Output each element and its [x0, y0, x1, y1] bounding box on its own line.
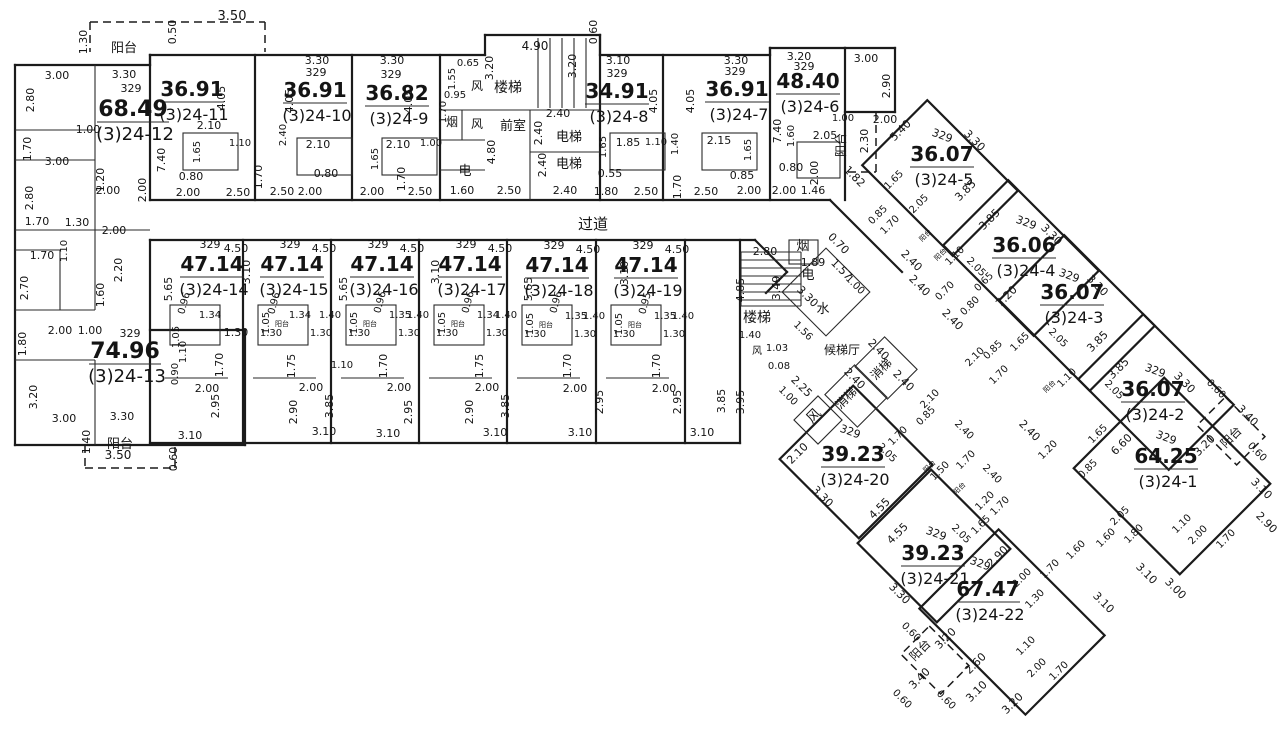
dimension-label: 1.30	[65, 216, 90, 229]
dimension-label: 2.50	[497, 184, 522, 197]
dimension-label: 0.80	[958, 294, 982, 318]
unit-id-label: (3)24-8	[590, 107, 649, 126]
unit-area-label: 36.91	[160, 77, 223, 101]
unit-area-label: 36.07	[1040, 280, 1103, 304]
dimension-label: 2.40	[906, 272, 933, 299]
dimension-label: 2.95	[209, 394, 222, 419]
unit-area-label: 68.49	[98, 97, 168, 122]
dimension-label: 329	[633, 239, 654, 252]
dimension-label: 1.65	[882, 168, 906, 192]
dimension-label: 1.80	[16, 332, 29, 357]
dimension-label: 0.80	[179, 170, 204, 183]
dimension-label: 1.30	[398, 328, 420, 339]
room-label: 过道	[578, 215, 608, 233]
unit-id-label: (3)24-22	[955, 605, 1024, 624]
dimension-label: 3.49	[770, 276, 783, 301]
dimension-label: 1.85	[616, 136, 641, 149]
dimension-label: 2.50	[694, 185, 719, 198]
dimension-label: 0.60	[167, 447, 180, 472]
room-label: 阳台	[539, 320, 553, 329]
dimension-label: 2.10	[784, 440, 811, 467]
dimension-label: 1.40	[739, 330, 761, 341]
room-label: 电梯	[556, 157, 582, 172]
dimension-label: 2.10	[306, 138, 331, 151]
dimension-label: 1.70	[252, 165, 265, 190]
dimension-label: 7.20	[993, 283, 1020, 310]
unit-area-label: 36.82	[365, 81, 428, 105]
dimension-label: 329	[200, 238, 221, 251]
room-label: 风	[471, 79, 483, 93]
dimension-label: 1.30	[436, 328, 458, 339]
unit-id-label: (3)24-7	[710, 105, 769, 124]
dimension-label: 329	[121, 82, 142, 95]
dimension-label: 5.65	[337, 277, 350, 302]
dimension-label: 3.85	[499, 394, 512, 419]
dimension-label: 2.40	[890, 367, 917, 394]
dimension-label: 1.30	[348, 328, 370, 339]
room-label: 阳台	[1041, 378, 1057, 394]
dimension-label: 2.05	[1046, 326, 1070, 350]
dimension-label: 2.95	[671, 390, 684, 415]
dimension-label: 2.40	[952, 418, 976, 442]
dimension-label: 1.30	[613, 329, 635, 340]
dimension-label: 0.60	[890, 687, 914, 711]
dimension-label: 1.40	[670, 133, 681, 155]
dimension-label: 3.00	[45, 155, 70, 168]
dimension-label: 3.10	[606, 54, 631, 67]
unit-area-label: 34.91	[585, 79, 648, 103]
dimension-label: 1.30	[260, 328, 282, 339]
unit-area-label: 64.25	[1134, 444, 1197, 468]
dimension-label: 329	[381, 68, 402, 81]
dimension-label: 1.55	[447, 68, 458, 90]
dimension-label: 1.80	[594, 185, 619, 198]
unit-area-label: 47.14	[525, 253, 588, 277]
unit-id-label: (3)24-12	[96, 124, 174, 145]
unit-id-label: (3)24-16	[349, 280, 418, 299]
room-label: 电梯	[556, 130, 582, 145]
room-label: 阳台	[951, 480, 967, 496]
dimension-label: 1.80	[1122, 522, 1146, 546]
dimension-label: 1.40	[583, 311, 605, 322]
dimension-label: 2.00	[298, 185, 323, 198]
dimension-label: 0.90	[170, 363, 181, 385]
unit-area-label: 39.23	[901, 541, 964, 565]
dimension-label: 2.00	[48, 324, 73, 337]
room-label: 候梯厅	[824, 343, 860, 357]
dimension-label: 0.80	[779, 161, 804, 174]
dimension-label: 1.70	[561, 354, 574, 379]
dimension-label: 2.00	[299, 381, 324, 394]
dimension-label: 2.00	[387, 381, 412, 394]
dimension-label: 0.60	[934, 688, 958, 712]
dimension-label: 2.00	[195, 382, 220, 395]
dimension-label: 0.70	[825, 230, 852, 257]
unit-id-label: (3)24-15	[259, 280, 328, 299]
dimension-label: 2.80	[23, 186, 36, 211]
dimension-label: 1.70	[886, 424, 910, 448]
dimension-label: 3.85	[323, 394, 336, 419]
dimension-label: 1.70	[395, 167, 408, 192]
dimension-label: 329	[280, 238, 301, 251]
dimension-label: 1.60	[450, 184, 475, 197]
unit-id-label: (3)24-3	[1045, 308, 1104, 327]
dimension-label: 1.40	[495, 310, 517, 321]
dimension-label: 1.75	[285, 354, 298, 379]
room-label: 楼梯	[494, 80, 522, 96]
unit-id-label: (3)24-2	[1126, 405, 1185, 424]
dimension-label: 2.00	[772, 184, 797, 197]
floor-plan-drawing: 3.501.300.50阳台3.002.803.303291.001.703.0…	[0, 0, 1287, 741]
unit-area-label: 36.06	[992, 233, 1055, 257]
dimension-label: 0.60	[587, 20, 600, 45]
dimension-label: 3.00	[854, 52, 879, 65]
room-label: 阳台	[628, 320, 642, 329]
dimension-label: 329	[1014, 213, 1038, 232]
dimension-label: 1.10	[1055, 366, 1079, 390]
room-label: 电	[801, 268, 814, 283]
dimension-label: 1.30	[224, 326, 249, 339]
unit-id-label: (3)24-18	[524, 281, 593, 300]
dimension-label: 2.05	[907, 192, 931, 216]
dimension-label: 0.60	[1204, 377, 1228, 401]
unit-id-label: (3)24-19	[613, 281, 682, 300]
dimension-label: 2.95	[593, 390, 606, 415]
dimension-label: 2.15	[707, 134, 732, 147]
dimension-label: 1.65	[1008, 330, 1032, 354]
room-label: 阳台	[833, 133, 848, 157]
dimension-label: 1.70	[987, 363, 1011, 387]
dimension-label: 1.65	[370, 148, 381, 170]
unit-area-label: 47.14	[180, 252, 243, 276]
room-label: 阳台	[111, 41, 137, 56]
unit-area-label: 48.40	[776, 69, 839, 93]
dimension-label: 7.40	[155, 148, 168, 173]
dimension-label: 2.00	[737, 184, 762, 197]
dimension-label: 0.65	[457, 58, 479, 69]
dimension-label: 2.00	[873, 113, 898, 126]
unit-area-label: 36.91	[283, 78, 346, 102]
dimension-label: 1.60	[94, 283, 107, 308]
unit-id-label: (3)24-1	[1139, 472, 1198, 491]
dimension-label: 3.50	[105, 448, 132, 462]
dimension-label: 1.70	[30, 249, 55, 262]
unit-id-label: (3)24-13	[88, 366, 166, 387]
dimension-label: 4.90	[522, 39, 549, 53]
dimension-label: 3.10	[963, 678, 990, 705]
dimension-label: 2.50	[226, 186, 251, 199]
dimension-label: 2.95	[402, 400, 415, 425]
dimension-label: 1.40	[80, 430, 93, 455]
dimension-label: 2.00	[475, 381, 500, 394]
dimension-label: 3.20	[566, 54, 579, 79]
dimension-label: 1.70	[671, 175, 684, 200]
dimension-label: 1.10	[645, 137, 667, 148]
dimension-label: 0.95	[444, 90, 466, 101]
room-label: 阳台	[1217, 423, 1245, 451]
unit-area-label: 36.07	[910, 142, 973, 166]
dimension-label: 4.85	[734, 278, 747, 303]
dimension-label: 3.10	[1090, 589, 1117, 616]
dimension-label: 2.00	[360, 185, 385, 198]
dimension-label: 3.30	[112, 68, 137, 81]
dimension-label: 3.20	[27, 385, 40, 410]
unit-id-label: (3)24-20	[820, 470, 889, 489]
room-label: 前室	[500, 118, 526, 134]
room-label: 阳台	[363, 319, 377, 328]
dimension-label: 2.00	[102, 224, 127, 237]
unit-id-label: (3)24-6	[781, 97, 840, 116]
dimension-label: 1.10	[59, 240, 70, 262]
dimension-label: 1.30	[1023, 587, 1047, 611]
dimension-label: 1.70	[1214, 527, 1238, 551]
dimension-label: 1.30	[77, 30, 90, 55]
dimension-label: 3.10	[1248, 475, 1275, 502]
dimension-label: 3.10	[1133, 560, 1160, 587]
dimension-label: 1.40	[407, 310, 429, 321]
dimension-label: 2.20	[112, 258, 125, 283]
dimension-label: 1.70	[213, 353, 226, 378]
dimension-label: 2.40	[532, 121, 545, 146]
dimension-label: 3.40	[906, 665, 933, 692]
dimension-label: 0.85	[981, 338, 1005, 362]
room-label: 阳台	[917, 227, 933, 243]
dimension-label: 1.20	[1036, 438, 1060, 462]
dimension-label: 2.70	[18, 276, 31, 301]
dimension-label: 1.60	[786, 125, 797, 147]
dimension-label: 2.40	[278, 124, 289, 146]
dimension-label: 1.10	[229, 138, 251, 149]
dimension-label: 2.90	[463, 400, 476, 425]
dimension-label: 3.10	[312, 425, 337, 438]
dimension-label: 1.65	[192, 141, 203, 163]
dimension-label: 2.40	[1016, 417, 1043, 444]
unit-area-label: 39.23	[821, 442, 884, 466]
dimension-label: 3.10	[376, 427, 401, 440]
dimension-label: 2.00	[808, 161, 821, 186]
dimension-label: 1.30	[663, 329, 685, 340]
room-label: 水	[816, 302, 829, 317]
dimension-label: 3.30	[110, 410, 135, 423]
dimension-label: 3.20	[999, 690, 1026, 717]
dimension-label: 2.40	[553, 184, 578, 197]
dimension-label: 1.00	[78, 324, 103, 337]
dimension-label: 2.40	[898, 247, 925, 274]
dimension-label: 329	[368, 238, 389, 251]
dimension-label: 3.50	[218, 9, 247, 24]
dimension-label: 2.90	[287, 400, 300, 425]
dimension-label: 2.80	[24, 88, 37, 113]
dimension-label: 1.60	[1064, 538, 1088, 562]
dimension-label: 329	[456, 238, 477, 251]
dimension-label: 2.00	[96, 184, 121, 197]
dimension-label: 2.40	[536, 153, 549, 178]
dimension-label: 3.95	[734, 390, 747, 415]
room-label: 风	[752, 345, 762, 357]
dimension-label: 1.65	[598, 136, 609, 158]
room-label: 烟	[446, 115, 458, 129]
dimension-label: 3.00	[52, 412, 77, 425]
dimension-label: 0.50	[166, 20, 179, 45]
unit-area-label: 74.96	[90, 339, 160, 364]
dimension-label: 4.05	[647, 89, 660, 114]
dimension-label: 0.70	[933, 279, 957, 303]
dimension-label: 3.00	[1162, 575, 1189, 602]
dimension-label: 1.00	[843, 273, 867, 297]
dimension-label: 1.30	[524, 329, 546, 340]
dimension-label: 329	[838, 422, 862, 441]
dimension-label: 2.00	[136, 178, 149, 203]
dimension-label: 0.55	[598, 167, 623, 180]
dimension-label: 2.00	[176, 186, 201, 199]
dimension-label: 1.65	[743, 139, 754, 161]
dimension-label: 2.40	[980, 462, 1004, 486]
dimension-label: 1.10	[331, 360, 353, 371]
dimension-label: 3.10	[178, 429, 203, 442]
dimension-label: 1.70	[1038, 557, 1062, 581]
dimension-label: 0.80	[314, 167, 339, 180]
unit-id-label: (3)24-11	[159, 105, 228, 124]
dimension-label: 1.56	[791, 319, 815, 343]
dimension-label: 2.00	[1025, 656, 1049, 680]
dimension-label: 3.20	[932, 625, 959, 652]
dimension-label: 1.10	[1170, 512, 1194, 536]
unit-id-label: (3)24-9	[370, 109, 429, 128]
dimension-label: 1.40	[672, 311, 694, 322]
unit-id-label: (3)24-17	[437, 280, 506, 299]
dimension-label: 6.60	[1108, 431, 1135, 458]
unit-area-label: 47.14	[350, 252, 413, 276]
dimension-label: 2.00	[563, 382, 588, 395]
dimension-label: 2.80	[753, 245, 778, 258]
room-label: 风	[804, 406, 825, 427]
room-label: 烟	[796, 239, 809, 254]
dimension-label: 1.70	[21, 137, 34, 162]
dimension-label: 1.70	[377, 354, 390, 379]
dimension-label: 3.30	[380, 54, 405, 67]
dimension-label: 7.40	[771, 119, 784, 144]
unit-area-label: 47.14	[260, 252, 323, 276]
dimension-label: 1.65	[969, 513, 993, 537]
dimension-label: 2.30	[858, 129, 871, 154]
dimension-label: 2.00	[1186, 523, 1210, 547]
dimension-label: 2.40	[546, 107, 571, 120]
dimension-label: 1.34	[199, 310, 221, 321]
unit-area-label: 47.14	[438, 252, 501, 276]
dimension-label: 1.75	[473, 354, 486, 379]
dimension-label: 1.10	[1014, 634, 1038, 658]
dimension-label: 4.05	[684, 89, 697, 114]
dimension-label: 1.70	[25, 215, 50, 228]
dimension-label: 3.10	[690, 426, 715, 439]
room-label: 阳台	[275, 319, 289, 328]
room-label: 电	[458, 164, 471, 179]
dimension-label: 1.30	[486, 328, 508, 339]
dimension-label: 329	[544, 239, 565, 252]
dimension-label: 3.10	[483, 426, 508, 439]
dimension-label: 3.85	[715, 389, 728, 414]
dimension-label: 1.03	[766, 343, 788, 354]
dimension-label: 1.40	[319, 310, 341, 321]
unit-area-label: 36.91	[705, 77, 768, 101]
dimension-label: 1.05	[171, 326, 182, 348]
dimension-label: 1.70	[650, 354, 663, 379]
dimension-label: 1.30	[574, 329, 596, 340]
unit-area-label: 67.47	[956, 577, 1019, 601]
room-label: 风	[471, 117, 483, 131]
dimension-label: 4.80	[485, 140, 498, 165]
unit-id-label: (3)24-10	[282, 106, 351, 125]
dimension-label: 1.34	[289, 310, 311, 321]
room-label: 楼梯	[743, 310, 771, 326]
dimension-label: 0.85	[730, 169, 755, 182]
dimension-label: 2.90	[1253, 509, 1280, 536]
dimension-label: 1.70	[954, 448, 978, 472]
room-label: 阳台	[451, 319, 465, 328]
dimension-label: 2.10	[386, 138, 411, 151]
dimension-label: 2.50	[634, 185, 659, 198]
dimension-label: 1.30	[310, 328, 332, 339]
dimension-label: 5.65	[162, 277, 175, 302]
unit-id-label: (3)24-14	[179, 280, 248, 299]
dimension-label: 0.08	[768, 361, 790, 372]
unit-area-label: 47.14	[614, 253, 677, 277]
dimension-label: 2.50	[270, 185, 295, 198]
unit-id-label: (3)24-4	[997, 261, 1056, 280]
room-label: 阳台	[906, 636, 934, 664]
unit-area-label: 36.07	[1121, 377, 1184, 401]
dimension-label: 3.10	[568, 426, 593, 439]
unit-id-label: (3)24-5	[915, 170, 974, 189]
dimension-label: 2.90	[880, 74, 893, 99]
dimension-label: 3.40	[1234, 402, 1261, 429]
dimension-label: 2.50	[408, 185, 433, 198]
dimension-label: 3.00	[45, 69, 70, 82]
dimension-label: 1.00	[420, 138, 442, 149]
dimension-label: 3.20	[483, 56, 496, 81]
floor-plan-page: 3.501.300.50阳台3.002.803.303291.001.703.0…	[0, 0, 1287, 741]
dimension-label: 1.60	[1094, 526, 1118, 550]
